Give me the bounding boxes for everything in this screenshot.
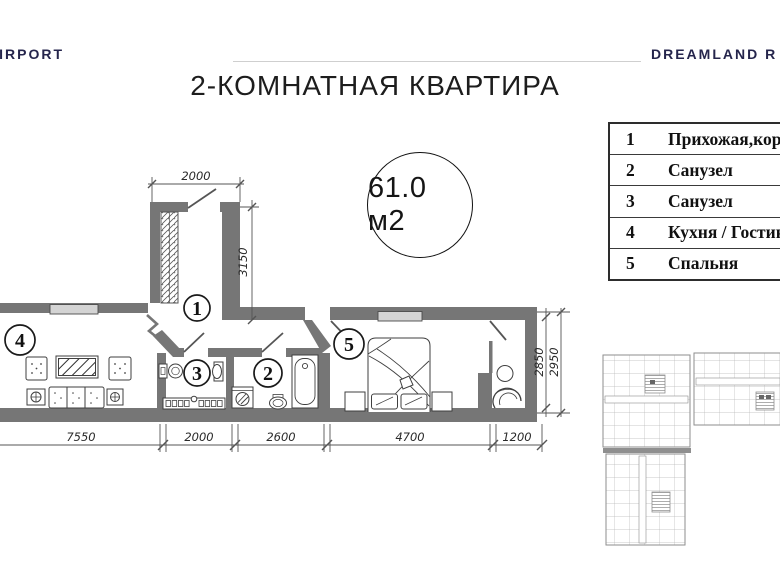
block-separator	[603, 448, 691, 453]
wall-top-right-band-b	[330, 307, 537, 320]
page-title: 2-КОМНАТНАЯ КВАРТИРА	[0, 70, 750, 102]
room-badge-4: 4	[5, 325, 35, 355]
dim-bottom-2000: 2000	[184, 430, 213, 444]
floor-plan: 2000 3150 7550 2000 2600 4700 1200 2850 …	[0, 140, 780, 580]
door-room3	[184, 333, 204, 352]
window-kitchen	[50, 305, 98, 315]
svg-text:1: 1	[192, 298, 202, 320]
pillow-left	[372, 394, 398, 409]
wall-top-right-band-a	[222, 307, 305, 320]
wall-bottom	[0, 408, 537, 422]
wall-hall-left	[150, 212, 160, 303]
door-entry	[188, 189, 216, 208]
wall-room2-room5	[318, 353, 330, 408]
dim-bottom-4700: 4700	[395, 430, 424, 444]
stair-core-c	[652, 492, 670, 512]
svg-text:3: 3	[192, 363, 202, 385]
header-divider	[233, 61, 641, 62]
dim-entry-width: 2000	[181, 169, 210, 183]
dim-bottom-7550: 7550	[66, 430, 95, 444]
building-block-b	[694, 353, 780, 425]
room-badge-5: 5	[334, 329, 364, 359]
svg-text:4: 4	[15, 330, 25, 352]
balcony-table	[497, 366, 513, 382]
window-bedroom	[378, 312, 422, 322]
dim-bottom-1200: 1200	[502, 430, 531, 444]
room-badge-3: 3	[184, 360, 210, 386]
furniture-living	[26, 356, 131, 408]
room-badge-1: 1	[184, 295, 210, 321]
dim-right-2850: 2850	[532, 347, 546, 376]
wall-bath-top-b	[208, 348, 262, 357]
dim-bottom-2600: 2600	[266, 430, 295, 444]
pillow-right	[401, 394, 427, 409]
building-overview-map	[603, 353, 780, 545]
furniture-balcony	[493, 366, 521, 409]
sofa	[49, 387, 104, 408]
wall-balcony-frame	[489, 341, 493, 373]
logo-dreamland: DREAMLAND R	[651, 46, 777, 62]
door-room2	[262, 333, 283, 352]
nightstand-right	[432, 392, 452, 411]
svg-text:5: 5	[344, 334, 354, 356]
wall-balcony-stub	[478, 373, 492, 408]
wall-bath-top-a	[173, 348, 184, 357]
nightstand-left	[345, 392, 365, 411]
wall-entry-left	[150, 202, 188, 212]
door-balcony	[490, 321, 506, 340]
wardrobe-hall	[161, 212, 178, 303]
stair-core-b	[756, 392, 774, 410]
dim-right-2950: 2950	[547, 347, 561, 376]
dim-entry-depth: 3150	[236, 247, 250, 276]
room-badge-2: 2	[254, 359, 282, 387]
svg-text:2: 2	[263, 363, 273, 385]
logo-airport: AIRPORT	[0, 46, 64, 62]
